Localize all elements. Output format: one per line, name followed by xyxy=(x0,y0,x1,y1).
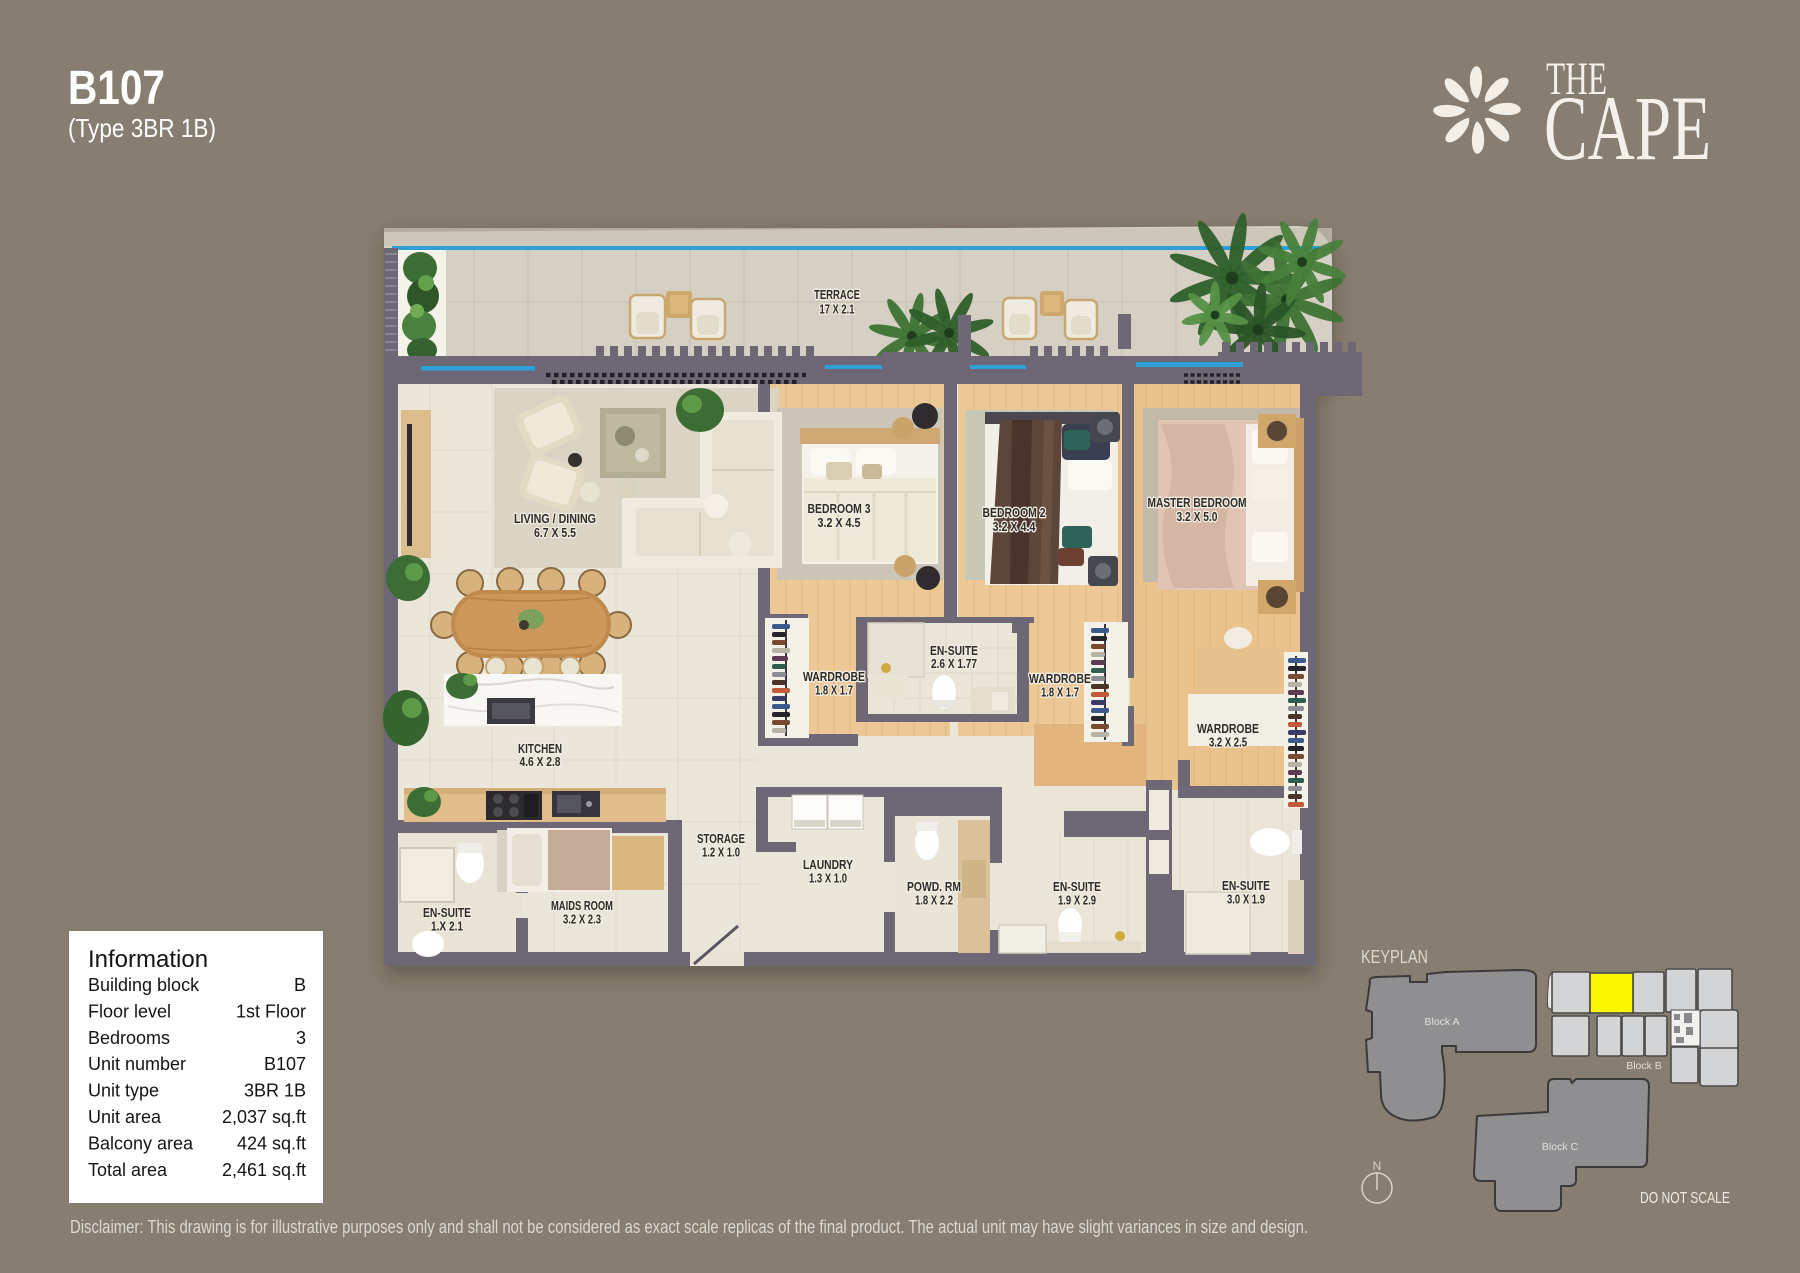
svg-text:1.9 X 2.9: 1.9 X 2.9 xyxy=(1058,893,1096,908)
svg-text:1.2 X 1.0: 1.2 X 1.0 xyxy=(702,845,740,860)
svg-text:1st Floor: 1st Floor xyxy=(236,1001,306,1021)
svg-text:Total area: Total area xyxy=(88,1160,168,1180)
svg-text:TERRACE: TERRACE xyxy=(814,287,860,302)
svg-text:6.7 X 5.5: 6.7 X 5.5 xyxy=(534,525,576,540)
svg-text:Block A: Block A xyxy=(1424,1016,1459,1028)
svg-text:2,461 sq.ft: 2,461 sq.ft xyxy=(222,1160,306,1180)
svg-text:3.2 X 5.0: 3.2 X 5.0 xyxy=(1177,509,1218,524)
svg-text:Unit type: Unit type xyxy=(88,1081,159,1101)
svg-text:Floor level: Floor level xyxy=(88,1001,171,1021)
svg-text:1.X 2.1: 1.X 2.1 xyxy=(431,919,463,934)
svg-text:424 sq.ft: 424 sq.ft xyxy=(237,1133,306,1153)
svg-text:MASTER BEDROOM: MASTER BEDROOM xyxy=(1148,495,1247,510)
svg-text:N: N xyxy=(1373,1159,1382,1173)
svg-text:2,037 sq.ft: 2,037 sq.ft xyxy=(222,1107,306,1127)
svg-text:1.8 X 2.2: 1.8 X 2.2 xyxy=(915,893,953,908)
svg-text:Block C: Block C xyxy=(1542,1141,1579,1153)
svg-text:(Type 3BR 1B): (Type 3BR 1B) xyxy=(68,113,216,143)
svg-text:3.2 X 4.4: 3.2 X 4.4 xyxy=(993,519,1037,534)
svg-text:1.3 X 1.0: 1.3 X 1.0 xyxy=(809,871,847,886)
svg-text:LIVING / DINING: LIVING / DINING xyxy=(514,511,596,526)
svg-text:3: 3 xyxy=(296,1028,306,1048)
svg-text:Unit area: Unit area xyxy=(88,1107,162,1127)
svg-text:B: B xyxy=(294,975,306,995)
svg-text:3.2 X 4.5: 3.2 X 4.5 xyxy=(818,515,861,530)
svg-text:Block B: Block B xyxy=(1626,1060,1662,1072)
svg-text:B107: B107 xyxy=(264,1054,306,1074)
svg-text:3BR 1B: 3BR 1B xyxy=(244,1081,306,1101)
svg-text:3.0 X 1.9: 3.0 X 1.9 xyxy=(1227,892,1265,907)
svg-text:Bedrooms: Bedrooms xyxy=(88,1028,170,1048)
svg-text:BEDROOM 3: BEDROOM 3 xyxy=(808,501,871,516)
svg-text:1.8 X 1.7: 1.8 X 1.7 xyxy=(815,683,853,698)
svg-text:BEDROOM 2: BEDROOM 2 xyxy=(983,505,1046,520)
svg-text:CAPE: CAPE xyxy=(1544,77,1711,179)
svg-text:2.6 X 1.77: 2.6 X 1.77 xyxy=(931,656,977,671)
svg-text:B107: B107 xyxy=(68,62,165,115)
svg-text:DO NOT SCALE: DO NOT SCALE xyxy=(1640,1190,1730,1207)
svg-text:Balcony area: Balcony area xyxy=(88,1133,194,1153)
svg-text:Unit number: Unit number xyxy=(88,1054,186,1074)
svg-text:17 X 2.1: 17 X 2.1 xyxy=(820,302,855,317)
svg-text:Information: Information xyxy=(88,946,208,973)
svg-text:1.8 X 1.7: 1.8 X 1.7 xyxy=(1041,685,1079,700)
svg-text:Disclaimer: This drawing is fo: Disclaimer: This drawing is for illustra… xyxy=(70,1217,1308,1237)
svg-text:3.2 X 2.3: 3.2 X 2.3 xyxy=(563,912,601,927)
svg-text:3.2 X 2.5: 3.2 X 2.5 xyxy=(1209,735,1247,750)
svg-text:Building block: Building block xyxy=(88,975,200,995)
svg-text:4.6 X 2.8: 4.6 X 2.8 xyxy=(520,754,561,769)
svg-text:KEYPLAN: KEYPLAN xyxy=(1361,947,1428,967)
